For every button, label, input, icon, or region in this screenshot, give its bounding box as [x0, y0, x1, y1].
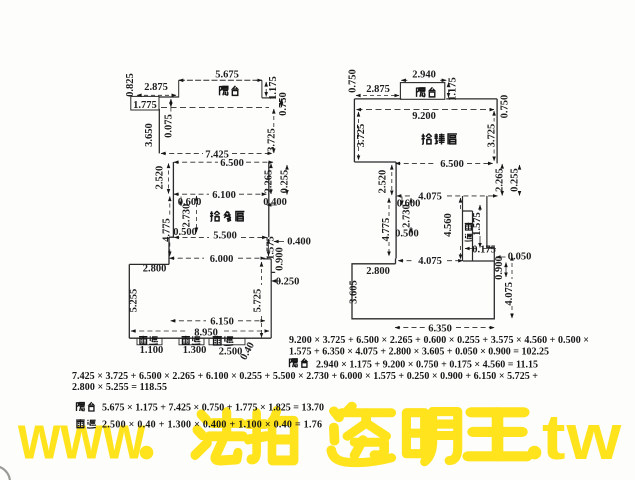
- svg-text:2.875: 2.875: [144, 82, 168, 93]
- svg-text:6.000: 6.000: [210, 254, 234, 265]
- svg-text:4.560: 4.560: [443, 213, 454, 237]
- svg-text:1.300: 1.300: [183, 345, 207, 356]
- svg-text:www: www: [17, 403, 146, 472]
- svg-text:2.940: 2.940: [412, 69, 436, 80]
- svg-text:2.730: 2.730: [182, 204, 193, 228]
- svg-text:3.605: 3.605: [349, 280, 360, 304]
- svg-text:9.200: 9.200: [412, 111, 436, 122]
- svg-text:tw: tw: [542, 402, 622, 473]
- svg-text:9.200 × 3.725 + 6.500 × 2.265: 9.200 × 3.725 + 6.500 × 2.265 + 0.600 × …: [289, 335, 589, 346]
- svg-text:1.175: 1.175: [448, 77, 459, 101]
- svg-text:1.775: 1.775: [133, 100, 157, 111]
- svg-text:0.750: 0.750: [278, 92, 289, 116]
- svg-text:0.400: 0.400: [287, 237, 311, 248]
- svg-text:6.100: 6.100: [212, 190, 236, 201]
- svg-text:0.175: 0.175: [472, 245, 496, 256]
- svg-text:3.650: 3.650: [144, 123, 155, 147]
- svg-text:5.675: 5.675: [215, 70, 239, 81]
- svg-text:1.575: 1.575: [472, 212, 483, 236]
- svg-text:0.900: 0.900: [275, 247, 286, 271]
- svg-text:6.500: 6.500: [440, 159, 464, 170]
- svg-text:2.520: 2.520: [378, 170, 389, 194]
- svg-text:0.750: 0.750: [500, 95, 511, 119]
- svg-text:0.250: 0.250: [276, 276, 300, 287]
- svg-text:0.900: 0.900: [494, 256, 505, 280]
- svg-text:0.400: 0.400: [263, 197, 287, 208]
- svg-text:2.800 × 5.255 = 118.55: 2.800 × 5.255 = 118.55: [72, 382, 167, 393]
- svg-text:5.675 × 1.175 + 7.425 × 0.750: 5.675 × 1.175 + 7.425 × 0.750 + 1.775 × …: [102, 403, 324, 414]
- svg-text:2.520: 2.520: [155, 166, 166, 190]
- svg-text:6.150: 6.150: [210, 316, 234, 327]
- svg-text:4.775: 4.775: [381, 218, 392, 242]
- svg-text:5.500: 5.500: [213, 230, 237, 241]
- svg-text:2.800: 2.800: [366, 266, 390, 277]
- svg-text:3.725: 3.725: [267, 128, 278, 152]
- svg-text:4.075: 4.075: [418, 256, 442, 267]
- svg-text:0.500: 0.500: [395, 229, 419, 240]
- svg-text:2.940 × 1.175 + 9.200 × 0.750: 2.940 × 1.175 + 9.200 × 0.750 + 0.175 × …: [316, 360, 538, 371]
- svg-text:4.075: 4.075: [418, 191, 442, 202]
- svg-text:2.730: 2.730: [402, 204, 413, 228]
- svg-text:5.725: 5.725: [253, 289, 264, 313]
- svg-text:5.255: 5.255: [129, 289, 140, 313]
- svg-text:1.100: 1.100: [140, 345, 164, 356]
- svg-text:0.500: 0.500: [173, 227, 197, 238]
- svg-text:0.825: 0.825: [125, 73, 136, 97]
- svg-text:3.725: 3.725: [356, 124, 367, 148]
- svg-text:0.750: 0.750: [347, 69, 358, 93]
- svg-text:2.500 × 0.40 + 1.300 × 0.400 +: 2.500 × 0.40 + 1.300 × 0.400 + 1.100 × 0…: [102, 420, 322, 431]
- svg-text:0.255: 0.255: [280, 170, 291, 194]
- svg-text:0.050: 0.050: [508, 252, 532, 263]
- svg-text:6.350: 6.350: [428, 323, 452, 334]
- svg-text:6.500: 6.500: [220, 158, 244, 169]
- svg-text:2.800: 2.800: [143, 264, 167, 275]
- svg-text:4.075: 4.075: [504, 282, 515, 306]
- svg-text:0.255: 0.255: [510, 168, 521, 192]
- svg-text:7.425 × 3.725 + 6.500 × 2.265: 7.425 × 3.725 + 6.500 × 2.265 + 6.100 × …: [72, 371, 538, 382]
- svg-text:4.775: 4.775: [162, 218, 173, 242]
- svg-text:2.265: 2.265: [495, 168, 506, 192]
- svg-text:0.075: 0.075: [164, 114, 175, 138]
- svg-text:3.725: 3.725: [487, 124, 498, 148]
- svg-text:1.575 + 6.350 × 4.075 + 2.800: 1.575 + 6.350 × 4.075 + 2.800 × 3.605 + …: [289, 346, 549, 357]
- svg-text:2.875: 2.875: [366, 84, 390, 95]
- svg-text:2.265: 2.265: [264, 170, 275, 194]
